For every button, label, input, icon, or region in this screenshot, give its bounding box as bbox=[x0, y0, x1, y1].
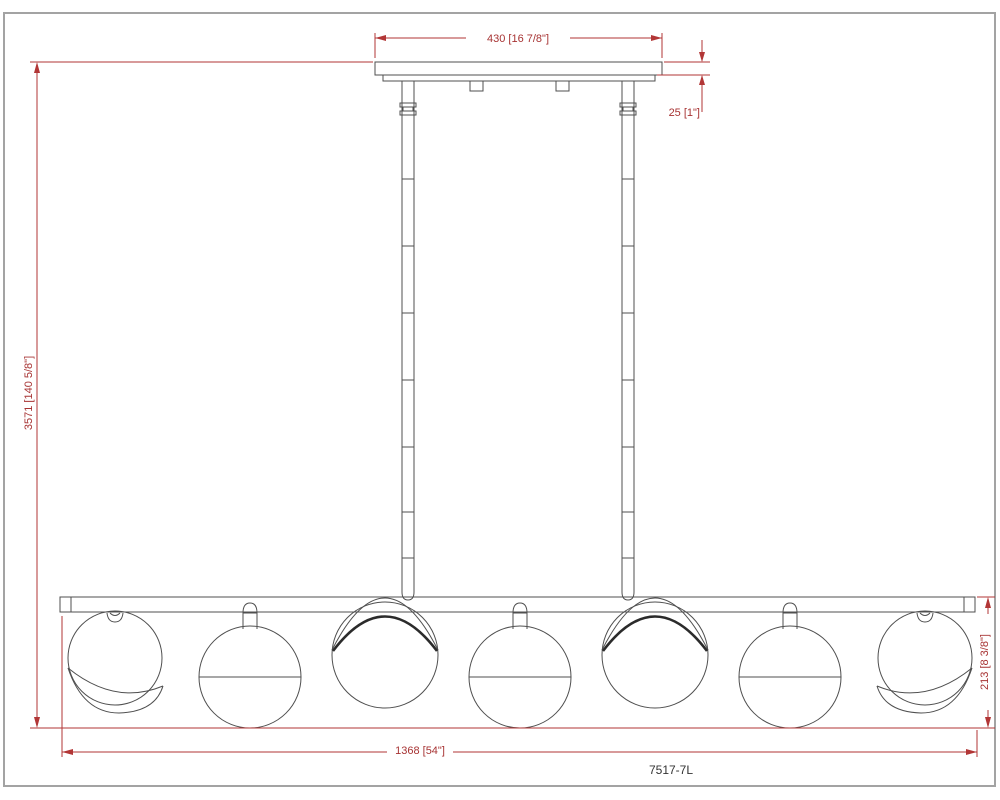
dim-canopy-width-label: 430 [16 7/8"] bbox=[487, 33, 549, 45]
globe-5 bbox=[602, 598, 708, 708]
globe-1 bbox=[68, 611, 163, 713]
dim-fixture-height: 213 [8 3/8"] bbox=[977, 597, 995, 728]
dim-canopy-width: 430 [16 7/8"] bbox=[375, 31, 662, 58]
canopy-tab bbox=[470, 81, 483, 91]
downrod-right bbox=[620, 81, 636, 600]
ceiling-canopy bbox=[375, 62, 662, 91]
fixture-dimension-drawing: 430 [16 7/8"] 25 [1"] 3571 [140 5/8"] 13… bbox=[0, 0, 1000, 800]
fixture-bar bbox=[60, 597, 975, 612]
spec-sheet-page: 430 [16 7/8"] 25 [1"] 3571 [140 5/8"] 13… bbox=[0, 0, 1000, 800]
globe-3 bbox=[332, 598, 438, 708]
dim-overall-height: 3571 [140 5/8"] bbox=[23, 62, 995, 728]
model-number: 7517-7L bbox=[649, 763, 693, 777]
globe-6 bbox=[739, 603, 841, 728]
globe-4 bbox=[469, 603, 571, 728]
page-border bbox=[4, 13, 995, 786]
globe-2 bbox=[199, 603, 301, 728]
globe-7 bbox=[877, 611, 972, 713]
dim-overall-height-label: 3571 [140 5/8"] bbox=[23, 356, 35, 430]
dim-canopy-thickness-label: 25 [1"] bbox=[669, 107, 700, 119]
downrod-left bbox=[400, 81, 416, 600]
dim-fixture-height-label: 213 [8 3/8"] bbox=[979, 634, 991, 690]
canopy-tab bbox=[556, 81, 569, 91]
dim-canopy-thickness: 25 [1"] bbox=[657, 40, 710, 119]
dim-bar-length-label: 1368 [54"] bbox=[395, 745, 445, 757]
